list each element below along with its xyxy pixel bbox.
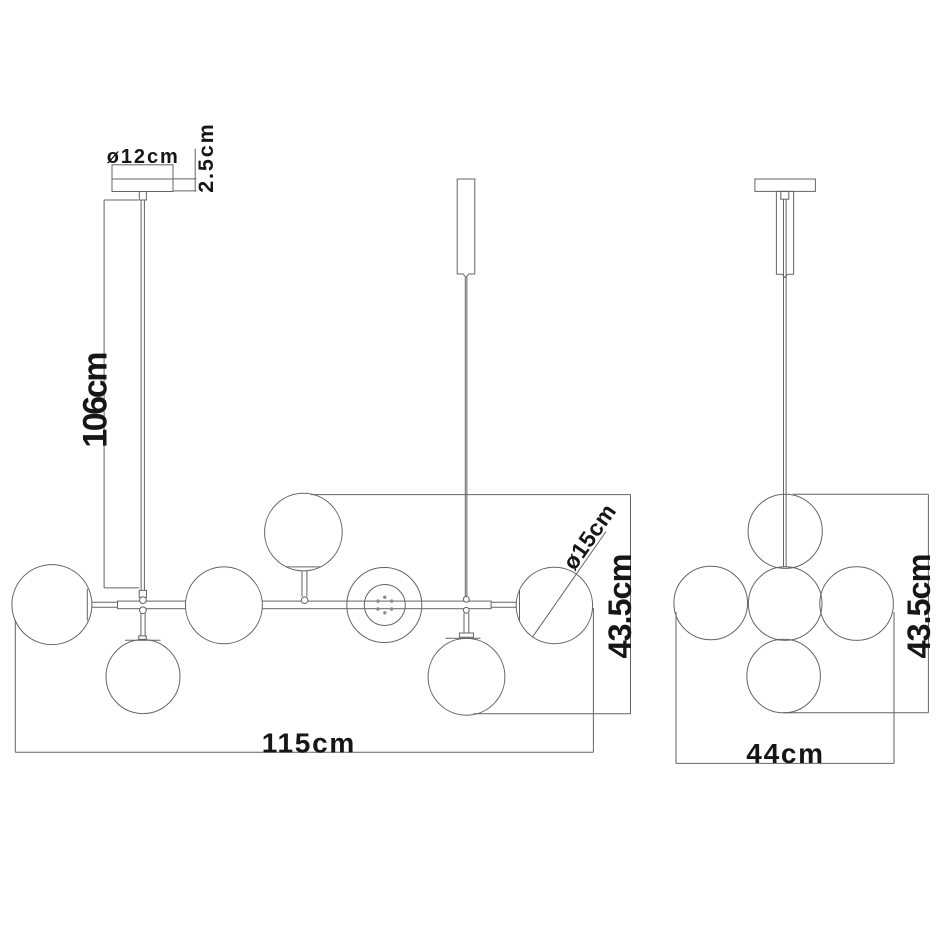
svg-text:ø12cm: ø12cm xyxy=(107,146,180,168)
svg-text:43.5cm: 43.5cm xyxy=(901,555,937,659)
svg-text:115cm: 115cm xyxy=(262,728,356,759)
svg-text:106cm: 106cm xyxy=(77,353,115,448)
svg-text:2.5cm: 2.5cm xyxy=(194,122,218,192)
svg-text:43.5cm: 43.5cm xyxy=(602,555,638,659)
svg-text:44cm: 44cm xyxy=(746,738,824,769)
